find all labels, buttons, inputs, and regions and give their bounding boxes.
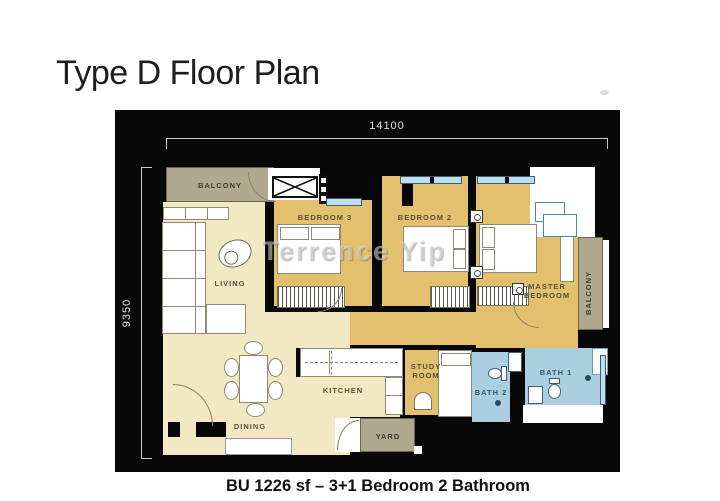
hallway-corridor [350, 312, 530, 345]
crossed-box-icon [272, 176, 318, 198]
dining-table [239, 355, 268, 403]
kitchen-counter [300, 348, 403, 377]
dining-chair [268, 381, 283, 400]
kitchen-counter-column [385, 377, 403, 415]
dining-chair [268, 358, 283, 377]
label-bedroom3: BEDROOM 3 [295, 213, 355, 222]
bottom-window-ledge [225, 438, 292, 455]
floor-plan: 14100 9350 [115, 110, 620, 472]
window-master [477, 176, 535, 184]
shower-head-bath2 [495, 400, 501, 406]
door-hinge [470, 210, 483, 223]
label-master-bedroom: MASTER BEDROOM [511, 282, 583, 300]
tv-cabinet [163, 207, 229, 220]
window-bath1 [600, 355, 606, 405]
window-bedroom2 [400, 176, 462, 184]
dimension-width-tick-right [607, 138, 608, 149]
wardrobe-bedroom2 [430, 286, 470, 308]
closet-foyer-step2 [543, 214, 577, 237]
dimension-height-tick-top [141, 167, 152, 168]
toilet-tank-bath1 [549, 378, 560, 384]
dining-chair [246, 403, 265, 417]
shower-head-bath1 [585, 375, 591, 381]
label-balcony-top: BALCONY [178, 181, 262, 190]
scan-artifact [600, 90, 609, 95]
door-arc-bedroom3 [318, 288, 342, 312]
toilet-bath2 [488, 368, 502, 379]
study-door-arch [414, 392, 432, 410]
watermark: Terrence Yip [262, 236, 446, 267]
sofa-chaise [206, 304, 246, 334]
page-title: Type D Floor Plan [56, 54, 320, 93]
label-bath2: BATH 2 [472, 388, 510, 397]
slide: Type D Floor Plan 14100 9350 [0, 0, 720, 501]
caption: BU 1226 sf – 3+1 Bedroom 2 Bathroom [18, 477, 720, 496]
dimension-width-line [166, 138, 608, 139]
label-study-room: STUDY ROOM [406, 362, 446, 380]
toilet-tank-bath2 [501, 366, 507, 381]
bath-bottom-ledge [523, 405, 603, 423]
toilet-bath1 [548, 384, 561, 399]
dining-chair [244, 341, 263, 355]
sink-bath1 [528, 386, 543, 404]
label-bath1: BATH 1 [527, 368, 585, 377]
dining-chair [224, 381, 239, 400]
dimension-height-tick-bottom [141, 458, 152, 459]
label-bedroom2: BEDROOM 2 [392, 213, 458, 222]
window-bedroom3 [326, 198, 362, 206]
label-dining: DINING [215, 422, 285, 431]
bed-master [479, 224, 537, 273]
dimension-height-line [141, 167, 142, 459]
yard-corner-box [414, 446, 422, 454]
wall-sliver-right [603, 240, 609, 328]
sofa [162, 222, 206, 334]
dimension-width-tick-left [166, 138, 167, 149]
bed-study [438, 350, 472, 417]
dimension-height-label: 9350 [121, 285, 135, 341]
label-kitchen: KITCHEN [308, 386, 378, 395]
service-shaft [508, 352, 522, 372]
door-hinge [470, 266, 483, 279]
label-yard: YARD [362, 432, 414, 441]
label-living: LIVING [190, 279, 270, 288]
dimension-width-label: 14100 [347, 120, 427, 132]
dining-chair [224, 358, 239, 377]
room-bath2 [472, 352, 510, 422]
label-balcony-right: BALCONY [584, 266, 596, 320]
